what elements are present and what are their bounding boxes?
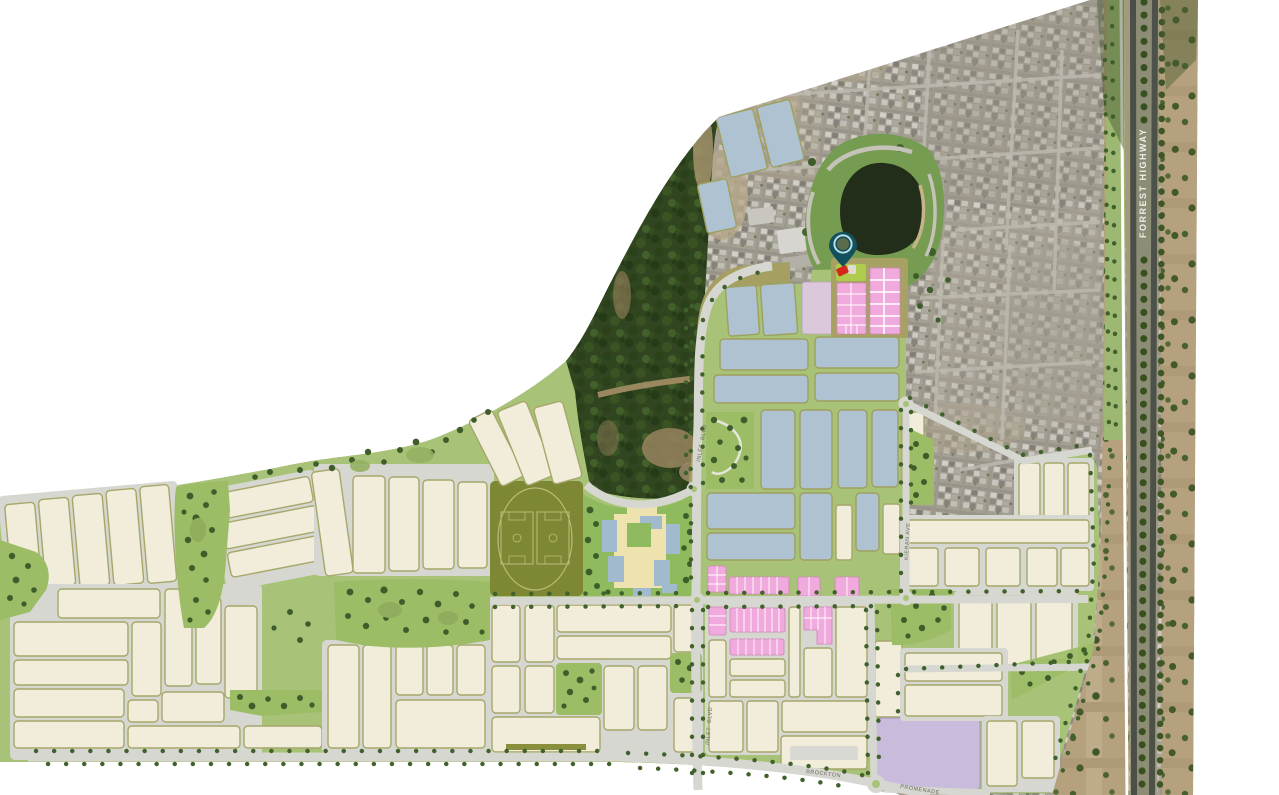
svg-text:FORREST HIGHWAY: FORREST HIGHWAY — [1138, 128, 1148, 238]
